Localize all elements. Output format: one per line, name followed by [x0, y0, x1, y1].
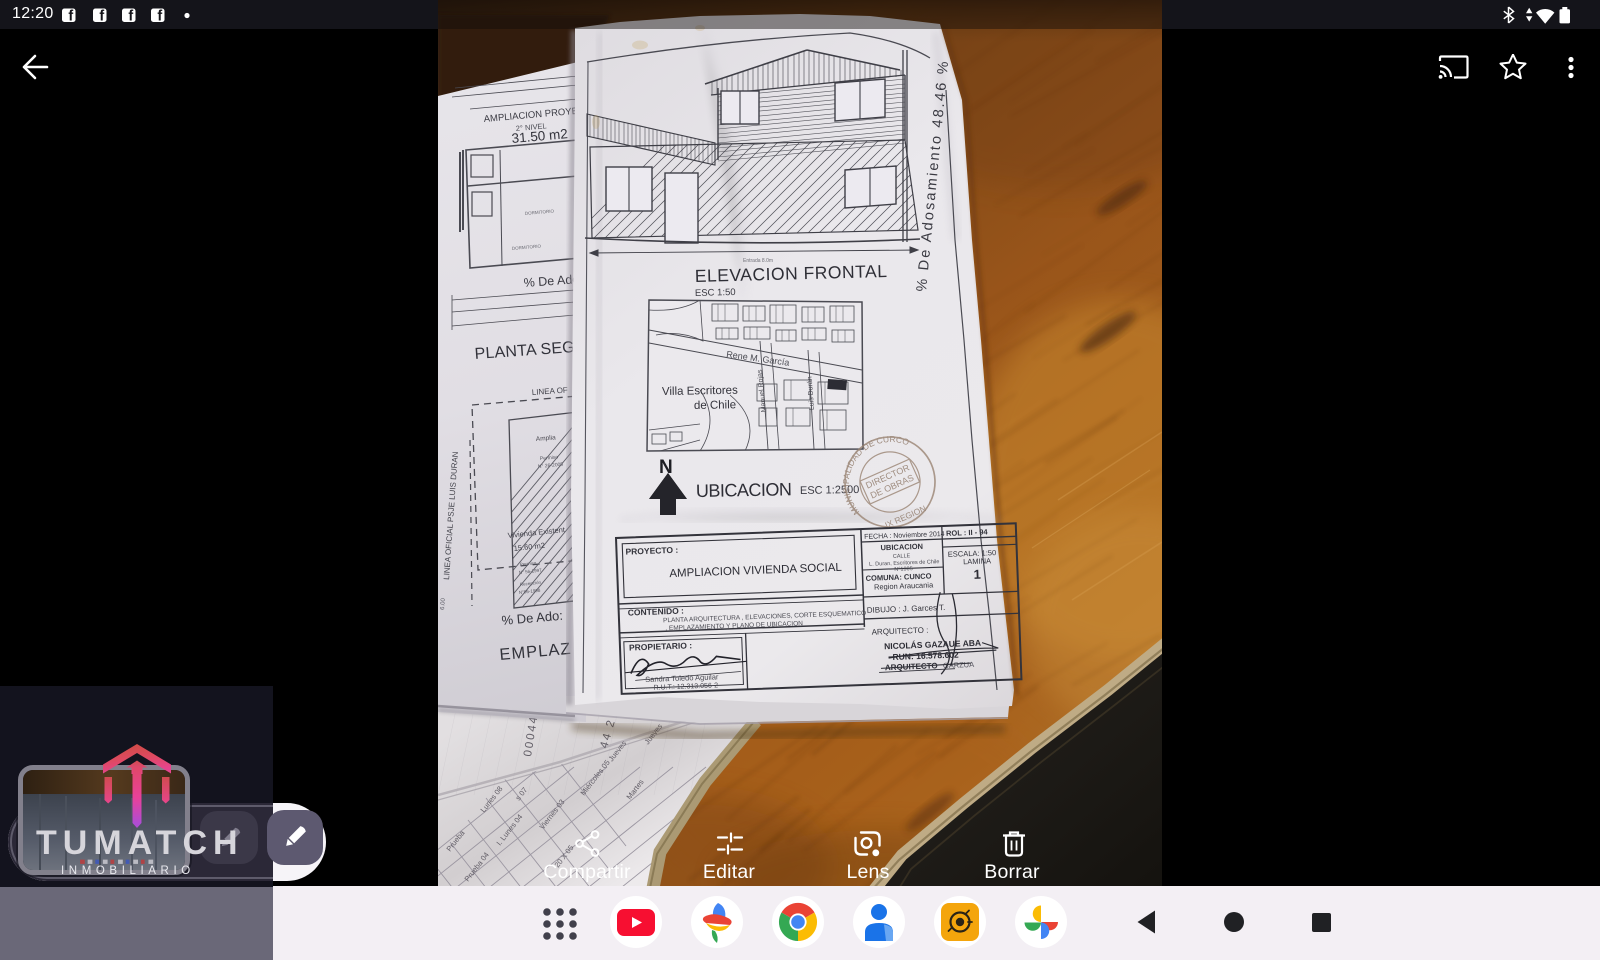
svg-text:de Chile: de Chile [694, 399, 736, 412]
svg-text:CONTENIDO :: CONTENIDO : [628, 606, 685, 618]
svg-text:ROL : II - 94: ROL : II - 94 [946, 527, 989, 538]
svg-text:f: f [128, 8, 133, 24]
svg-text:f: f [157, 8, 162, 24]
svg-text:1: 1 [973, 567, 981, 582]
svg-text:LAMINA: LAMINA [963, 556, 991, 566]
svg-text:f: f [99, 8, 104, 24]
svg-text:UBICACION: UBICACION [696, 479, 792, 501]
svg-text:6.00: 6.00 [440, 597, 447, 610]
svg-text:CALLE: CALLE [893, 553, 911, 560]
svg-text:f: f [68, 8, 73, 24]
svg-text:ESC 1:50: ESC 1:50 [695, 287, 736, 299]
svg-text:Villa Escritores: Villa Escritores [662, 385, 738, 398]
svg-text:UBICACION: UBICACION [880, 542, 923, 553]
svg-text:N: N [659, 457, 673, 478]
svg-text:PROYECTO :: PROYECTO : [625, 545, 678, 557]
